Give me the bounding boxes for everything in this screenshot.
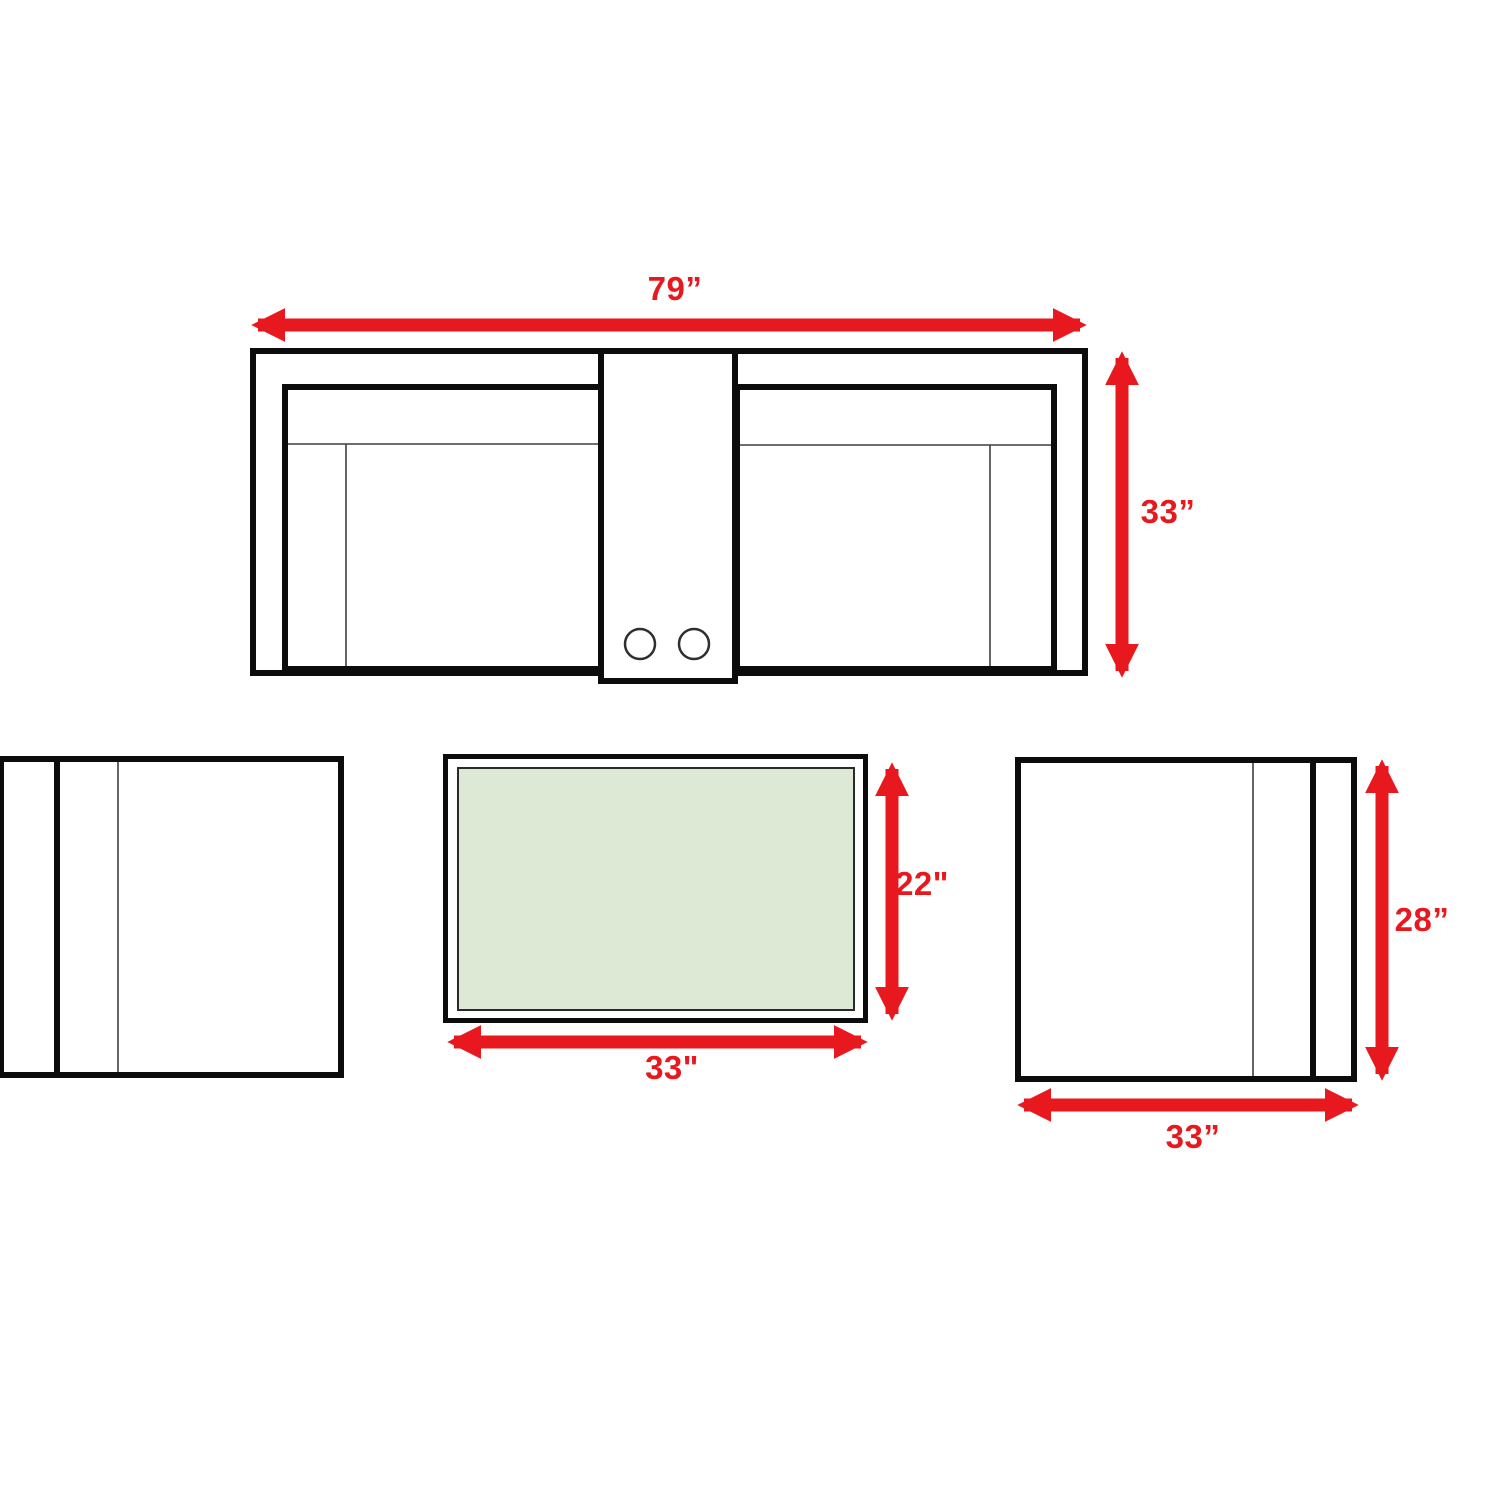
sofa-left-seat-section [285,387,602,669]
diagram-drawing [0,0,1500,1500]
sofa-top-view [253,351,1085,681]
left-chair-outer-frame [1,759,341,1075]
table-depth-dimension-label: 22" [895,865,949,903]
left-chair-top-view [1,759,341,1075]
furniture-dimension-diagram: 79” 33” 22" 33" 28” 33” [0,0,1500,1500]
coffee-table-glass-top [458,768,854,1010]
right-chair-depth-dimension-label: 28” [1395,901,1450,939]
sofa-width-dimension-label: 79” [648,270,703,308]
table-width-dimension-label: 33" [645,1049,699,1087]
sofa-depth-dimension-label: 33” [1141,493,1196,531]
sofa-center-console [601,351,735,681]
right-chair-top-view [1018,760,1354,1079]
right-chair-outer-frame [1018,760,1354,1079]
cupholder-right-icon [679,629,709,659]
sofa-right-seat-section [737,387,1054,669]
cupholder-left-icon [625,629,655,659]
coffee-table-top-view [446,757,866,1021]
right-chair-width-dimension-label: 33” [1166,1118,1221,1156]
